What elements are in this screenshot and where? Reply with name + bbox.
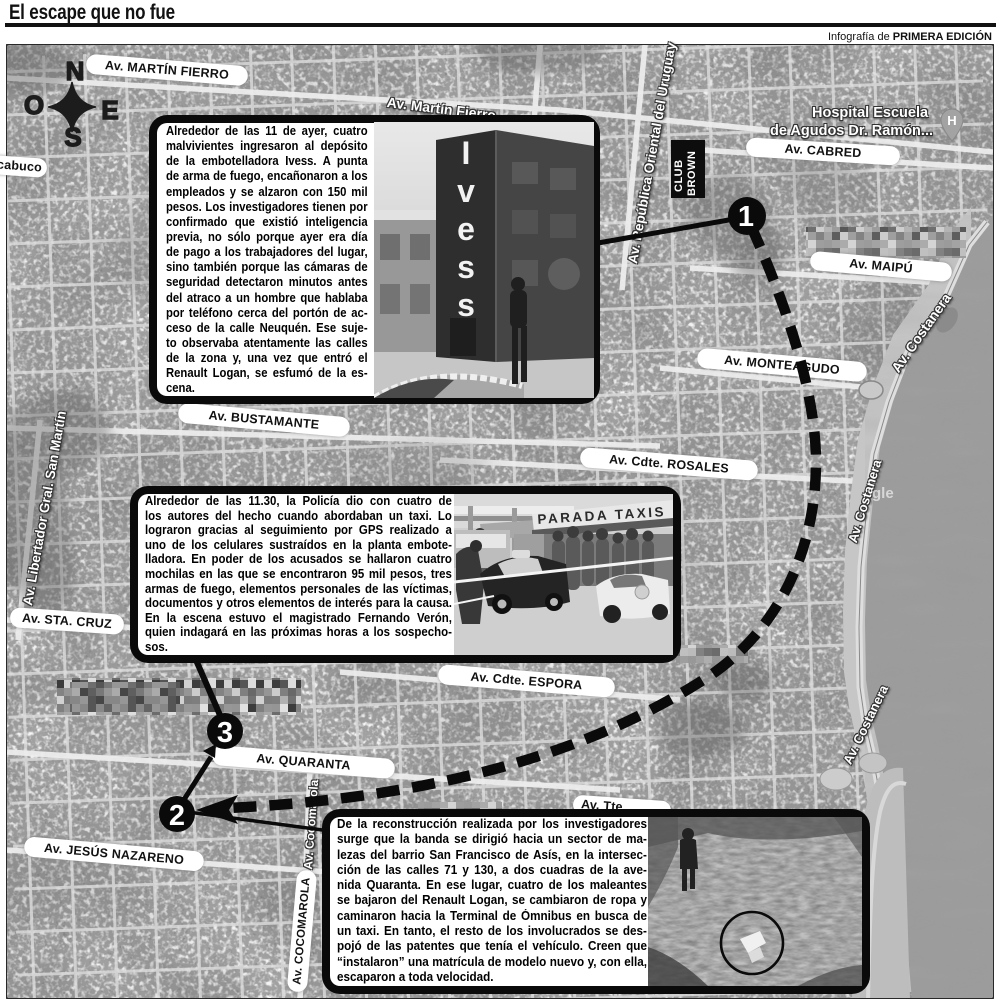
svg-text:e: e: [457, 211, 475, 247]
svg-text:v: v: [457, 173, 475, 209]
svg-text:3: 3: [217, 717, 233, 749]
svg-text:2: 2: [169, 800, 185, 832]
svg-text:1: 1: [738, 201, 754, 233]
svg-text:s: s: [457, 249, 475, 285]
svg-text:I: I: [462, 135, 471, 171]
svg-text:s: s: [457, 287, 475, 323]
